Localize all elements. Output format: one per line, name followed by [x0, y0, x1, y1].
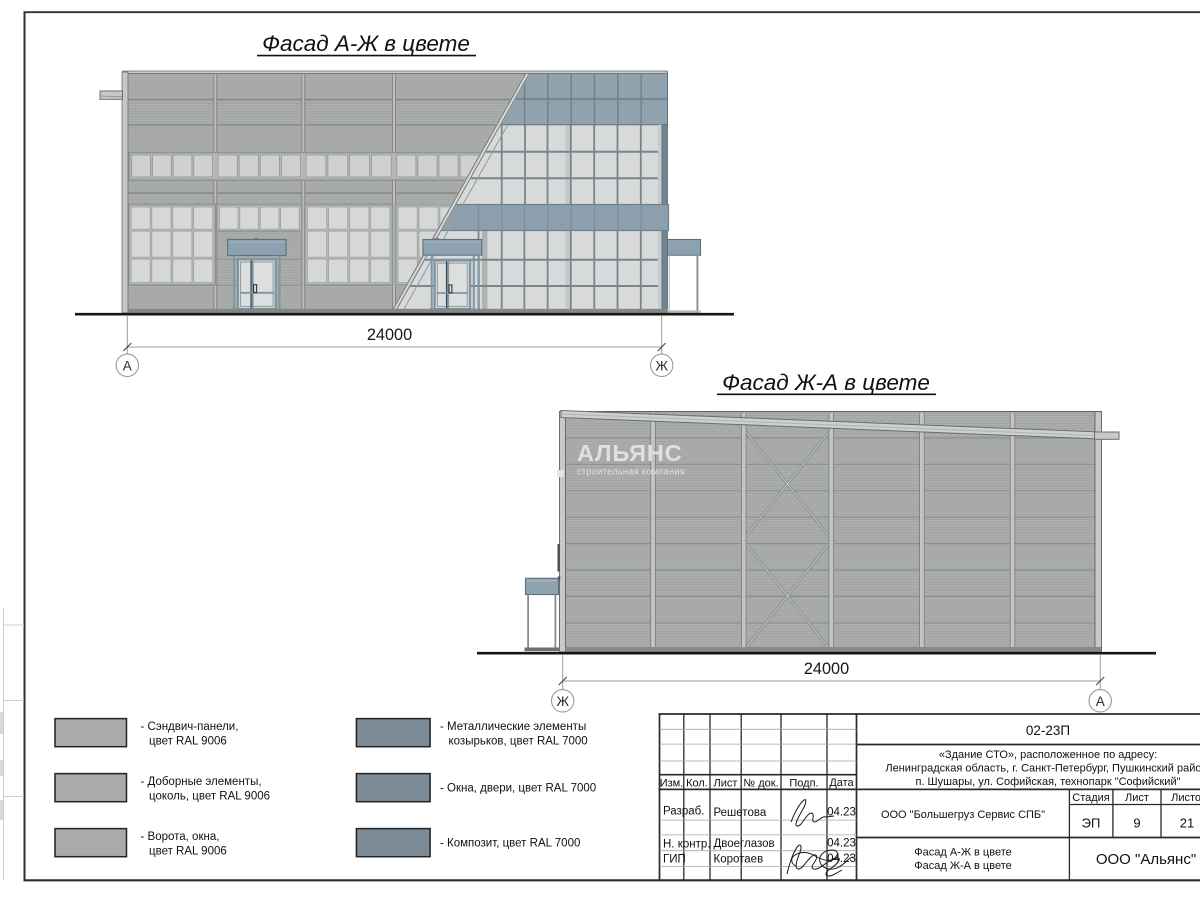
- svg-text:цвет RAL 9006: цвет RAL 9006: [149, 736, 227, 748]
- svg-text:- Доборные элементы,: - Доборные элементы,: [141, 776, 262, 788]
- svg-text:Разраб.: Разраб.: [663, 806, 704, 818]
- svg-text:Листов: Листов: [1171, 792, 1200, 804]
- svg-text:Коротаев: Коротаев: [714, 854, 764, 866]
- svg-text:№ док.: № док.: [743, 778, 778, 790]
- svg-text:Кол.: Кол.: [686, 778, 708, 790]
- svg-text:24000: 24000: [804, 660, 849, 678]
- svg-text:Фасад Ж-А в цвете: Фасад Ж-А в цвете: [722, 370, 930, 395]
- svg-text:А: А: [1096, 694, 1105, 709]
- svg-text:ООО "Альянс": ООО "Альянс": [1096, 851, 1196, 868]
- svg-text:Решетова: Решетова: [714, 807, 767, 819]
- svg-text:п. Шушары, ул. Софийская, техн: п. Шушары, ул. Софийская, технопарк "Соф…: [915, 776, 1180, 788]
- svg-text:- Металлические элементы: - Металлические элементы: [440, 721, 586, 733]
- svg-text:Двоеглазов: Двоеглазов: [714, 838, 775, 850]
- svg-text:ООО "Большегруз Сервис СПБ": ООО "Большегруз Сервис СПБ": [881, 809, 1045, 821]
- svg-text:Подп.: Подп.: [789, 778, 818, 790]
- svg-text:Лист: Лист: [1125, 792, 1149, 804]
- svg-text:Н. контр.: Н. контр.: [663, 839, 710, 851]
- svg-text:Ж: Ж: [655, 358, 668, 373]
- svg-text:цвет RAL 9006: цвет RAL 9006: [149, 846, 227, 858]
- svg-text:Фасад Ж-А в цвете: Фасад Ж-А в цвете: [914, 860, 1012, 872]
- svg-text:Фасад А-Ж в цвете: Фасад А-Ж в цвете: [914, 847, 1012, 859]
- svg-text:- Ворота, окна,: - Ворота, окна,: [141, 831, 220, 843]
- svg-text:- Окна, двери, цвет RAL 7000: - Окна, двери, цвет RAL 7000: [440, 783, 596, 795]
- svg-text:АЛЬЯНС: АЛЬЯНС: [577, 440, 682, 466]
- svg-text:Лист: Лист: [714, 778, 738, 790]
- svg-text:04.23: 04.23: [827, 853, 856, 865]
- svg-text:- Сэндвич-панели,: - Сэндвич-панели,: [141, 721, 239, 733]
- svg-text:Стадия: Стадия: [1072, 792, 1110, 804]
- svg-text:цоколь, цвет RAL 9006: цоколь, цвет RAL 9006: [149, 791, 270, 803]
- svg-text:Фасад А-Ж в цвете: Фасад А-Ж в цвете: [262, 31, 470, 56]
- svg-text:Дата: Дата: [829, 777, 854, 789]
- svg-text:04.23: 04.23: [827, 838, 856, 850]
- svg-text:Изм.: Изм.: [660, 778, 684, 790]
- svg-text:козырьков, цвет RAL 7000: козырьков, цвет RAL 7000: [449, 736, 588, 748]
- svg-text:«Здание СТО», расположенное по: «Здание СТО», расположенное по адресу:: [939, 749, 1157, 761]
- svg-text:24000: 24000: [367, 326, 412, 344]
- svg-text:02-23П: 02-23П: [1026, 723, 1070, 738]
- svg-text:ГИП: ГИП: [663, 854, 686, 866]
- svg-text:21: 21: [1180, 816, 1194, 831]
- svg-text:ЭП: ЭП: [1082, 816, 1101, 831]
- svg-text:- Композит, цвет RAL 7000: - Композит, цвет RAL 7000: [440, 838, 580, 850]
- svg-text:9: 9: [1133, 816, 1140, 831]
- svg-text:Ленинградская область, г. Санк: Ленинградская область, г. Санкт-Петербур…: [885, 763, 1200, 775]
- svg-text:Ж: Ж: [556, 694, 569, 709]
- svg-text:строительная компания: строительная компания: [577, 467, 685, 477]
- svg-text:А: А: [123, 358, 132, 373]
